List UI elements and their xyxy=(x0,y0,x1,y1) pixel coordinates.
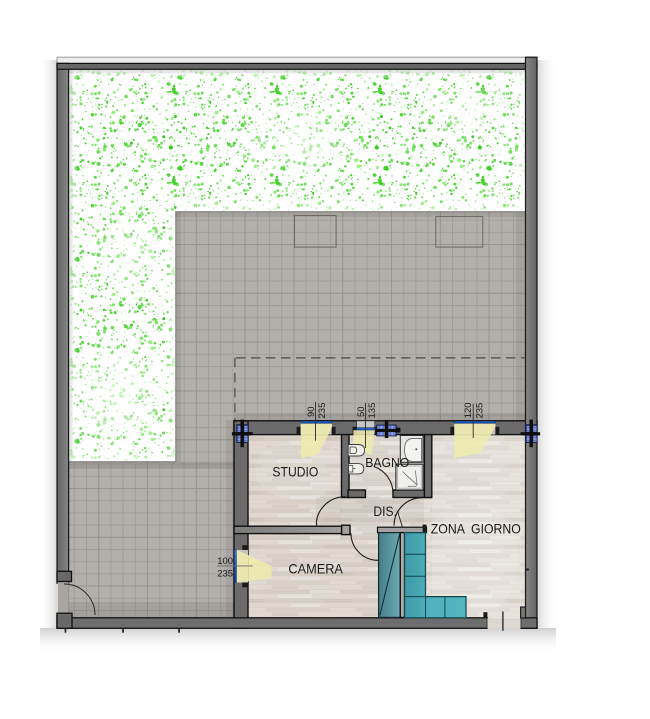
svg-text:135: 135 xyxy=(367,403,378,419)
svg-text:50: 50 xyxy=(356,406,367,417)
svg-text:235: 235 xyxy=(317,403,328,419)
svg-text:DIS.: DIS. xyxy=(373,504,397,519)
svg-text:90: 90 xyxy=(306,406,317,417)
svg-text:235: 235 xyxy=(217,568,233,579)
svg-text:100: 100 xyxy=(217,556,233,567)
svg-text:STUDIO: STUDIO xyxy=(272,464,318,479)
svg-text:BAGNO: BAGNO xyxy=(365,456,409,470)
svg-text:CAMERA: CAMERA xyxy=(288,562,343,577)
svg-text:235: 235 xyxy=(475,403,486,419)
svg-text:120: 120 xyxy=(463,402,474,418)
svg-text:ZONA GIORNO: ZONA GIORNO xyxy=(431,521,521,536)
